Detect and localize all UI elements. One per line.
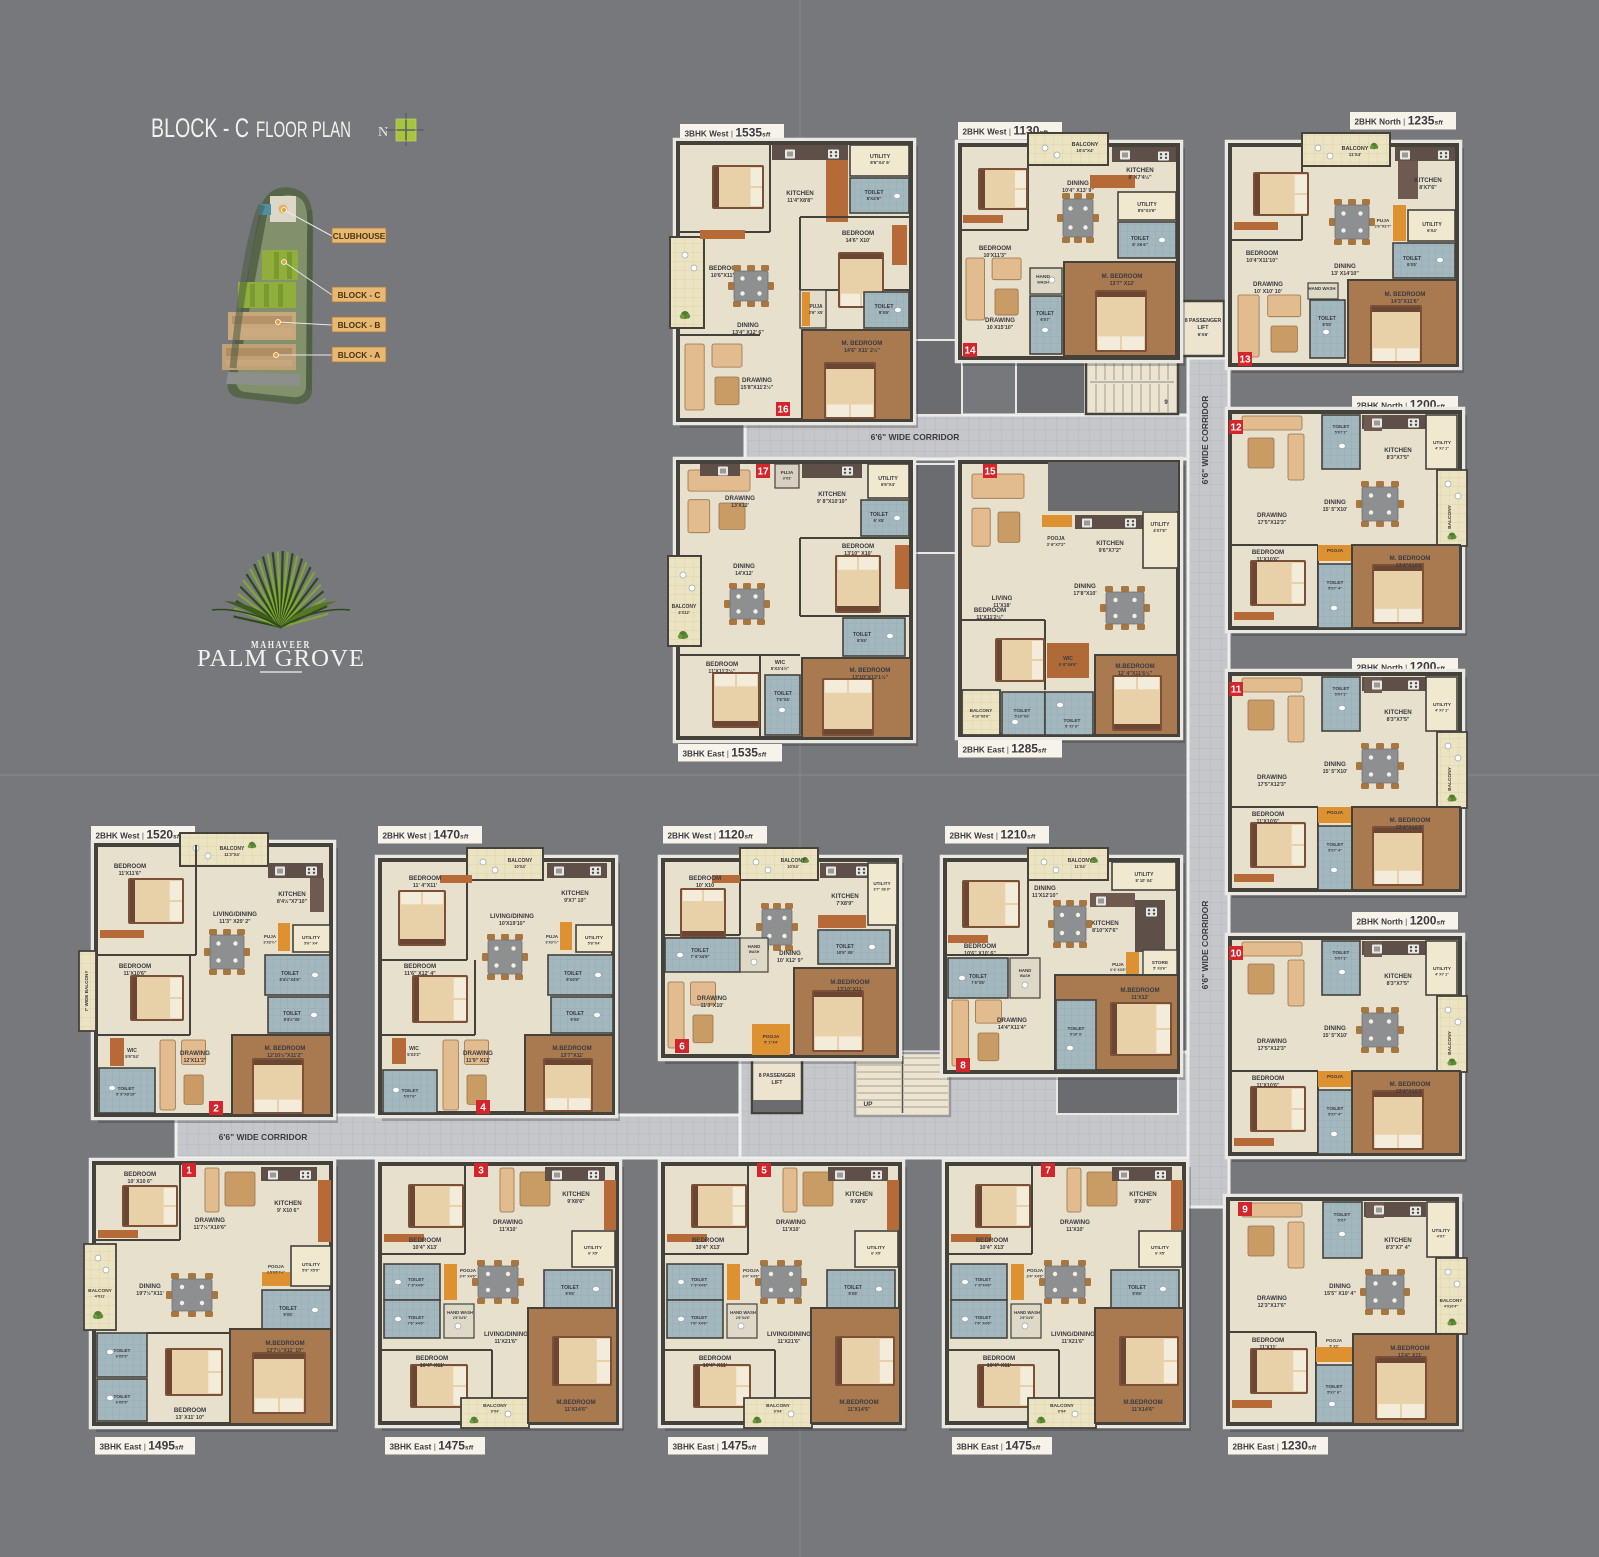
svg-text:DRAWING: DRAWING bbox=[1257, 1038, 1287, 1045]
svg-text:10'5" X5': 10'5" X5' bbox=[837, 950, 854, 955]
svg-text:5' 1"X4': 5' 1"X4' bbox=[764, 1040, 778, 1045]
svg-text:10'X4': 10'X4' bbox=[514, 864, 526, 869]
svg-text:TOILET: TOILET bbox=[691, 1277, 707, 1282]
svg-text:DRAWING: DRAWING bbox=[1060, 1219, 1090, 1226]
svg-text:KITCHEN: KITCHEN bbox=[1126, 167, 1154, 174]
svg-text:13' X11' 10": 13' X11' 10" bbox=[176, 1415, 205, 1421]
svg-text:BEDROOM: BEDROOM bbox=[689, 875, 721, 882]
svg-text:8'4½"X7'10": 8'4½"X7'10" bbox=[277, 898, 308, 905]
svg-text:M.BEDROOM: M.BEDROOM bbox=[1115, 663, 1154, 670]
svg-text:7'6" X4'6": 7'6" X4'6" bbox=[691, 1321, 708, 1325]
svg-text:DRAWING: DRAWING bbox=[1257, 774, 1287, 781]
svg-text:12'X11'2": 12'X11'2" bbox=[183, 1058, 206, 1064]
svg-text:10'4" X11': 10'4" X11' bbox=[987, 1363, 1011, 1369]
svg-text:4' X7 1": 4' X7 1" bbox=[1435, 972, 1449, 977]
svg-text:3' 6"X7'2": 3' 6"X7'2" bbox=[1047, 542, 1066, 547]
svg-text:13'4"X10'6": 13'4"X10'6" bbox=[1396, 1089, 1425, 1095]
svg-text:9'X4': 9'X4' bbox=[1058, 1409, 1067, 1414]
svg-text:6'X5': 6'X5' bbox=[1407, 262, 1417, 267]
svg-text:BALCONY: BALCONY bbox=[1440, 1298, 1463, 1303]
svg-text:M. BEDROOM: M. BEDROOM bbox=[1390, 1081, 1431, 1088]
svg-text:BEDROOM: BEDROOM bbox=[1246, 250, 1278, 257]
svg-text:13'7" X12': 13'7" X12' bbox=[1110, 281, 1135, 287]
svg-text:11'X21'6": 11'X21'6" bbox=[494, 1339, 517, 1345]
svg-text:BLOCK - A: BLOCK - A bbox=[338, 350, 381, 360]
svg-text:M.BEDROOM: M.BEDROOM bbox=[830, 979, 869, 986]
svg-text:7'6"X5': 7'6"X5' bbox=[776, 697, 789, 702]
svg-text:PUJA: PUJA bbox=[1112, 962, 1125, 967]
svg-text:4'X7'6": 4'X7'6" bbox=[1153, 528, 1167, 533]
svg-text:11'X12'10": 11'X12'10" bbox=[1032, 893, 1058, 899]
svg-text:BEDROOM: BEDROOM bbox=[976, 1237, 1008, 1244]
svg-text:5'X3'2": 5'X3'2" bbox=[407, 1052, 421, 1057]
svg-text:KITCHEN: KITCHEN bbox=[818, 491, 846, 498]
svg-text:11'X14'6": 11'X14'6" bbox=[564, 1407, 587, 1413]
svg-text:13'7½"X11' 10": 13'7½"X11' 10" bbox=[266, 1347, 304, 1354]
svg-text:15'8"X11'2½": 15'8"X11'2½" bbox=[741, 384, 774, 391]
svg-text:3' 6' X3'6": 3' 6' X3'6" bbox=[1110, 968, 1127, 972]
svg-text:POOJA: POOJA bbox=[1327, 810, 1344, 815]
svg-text:3'X3'½": 3'X3'½" bbox=[263, 940, 276, 944]
svg-text:LIVING/DINING: LIVING/DINING bbox=[1051, 1331, 1095, 1338]
svg-text:9'X8'6": 9'X8'6" bbox=[850, 1199, 868, 1205]
svg-text:5'9"X4': 5'9"X4' bbox=[125, 1054, 138, 1059]
svg-text:5'X7'6": 5'X7'6" bbox=[404, 1094, 417, 1099]
svg-text:BEDROOM: BEDROOM bbox=[692, 1237, 724, 1244]
svg-text:16: 16 bbox=[777, 405, 789, 416]
svg-text:BLOCK - C: BLOCK - C bbox=[338, 290, 381, 300]
svg-text:8'3"X7'5": 8'3"X7'5" bbox=[1387, 981, 1410, 987]
svg-text:11'X14'6": 11'X14'6" bbox=[847, 1407, 870, 1413]
svg-text:7'6" X4'6": 7'6" X4'6" bbox=[975, 1321, 992, 1325]
svg-text:BALCONY: BALCONY bbox=[1447, 766, 1453, 791]
svg-text:2'6"X4'6": 2'6"X4'6" bbox=[453, 1316, 468, 1320]
svg-text:DRAWING: DRAWING bbox=[180, 1050, 210, 1057]
svg-text:DINING: DINING bbox=[1034, 885, 1056, 892]
svg-text:6' X5': 6' X5' bbox=[874, 518, 885, 523]
svg-text:9'X5': 9'X5' bbox=[565, 1291, 574, 1296]
svg-text:5: 5 bbox=[761, 1166, 767, 1177]
svg-text:2'6"X4'6": 2'6"X4'6" bbox=[1020, 1316, 1035, 1320]
svg-text:10'4" X11': 10'4" X11' bbox=[420, 1363, 444, 1369]
svg-text:LIVING/DINING: LIVING/DINING bbox=[767, 1331, 811, 1338]
svg-text:11'X10'6": 11'X10'6" bbox=[1256, 1083, 1279, 1089]
svg-text:11'4"X8'8": 11'4"X8'8" bbox=[787, 198, 813, 204]
svg-text:11'X21'6": 11'X21'6" bbox=[777, 1339, 800, 1345]
svg-text:11'X10'6": 11'X10'6" bbox=[123, 971, 146, 977]
svg-text:LIVING/DINING: LIVING/DINING bbox=[490, 913, 534, 920]
svg-text:5'9" X5'9": 5'9" X5'9" bbox=[302, 1268, 320, 1273]
svg-text:10' X10' 10': 10' X10' 10' bbox=[1254, 289, 1282, 295]
svg-text:DINING: DINING bbox=[1334, 263, 1356, 270]
svg-text:WASH: WASH bbox=[1020, 974, 1031, 978]
svg-text:DINING: DINING bbox=[1074, 583, 1096, 590]
svg-text:TOILET: TOILET bbox=[691, 1315, 707, 1320]
svg-text:POOJA: POOJA bbox=[1327, 1074, 1344, 1079]
svg-text:KITCHEN: KITCHEN bbox=[1384, 973, 1412, 980]
svg-text:TOILET: TOILET bbox=[975, 1277, 991, 1282]
svg-text:KITCHEN: KITCHEN bbox=[561, 890, 589, 897]
svg-text:9'6"X7'2": 9'6"X7'2" bbox=[1099, 548, 1122, 554]
svg-text:2'6"X3'7": 2'6"X3'7" bbox=[1375, 224, 1392, 229]
svg-text:DRAWING: DRAWING bbox=[493, 1219, 523, 1226]
svg-text:6'6" WIDE CORRIDOR: 6'6" WIDE CORRIDOR bbox=[871, 432, 960, 442]
svg-text:KITCHEN: KITCHEN bbox=[1129, 1191, 1157, 1198]
svg-text:6'X6': 6'X6' bbox=[1198, 332, 1209, 338]
svg-text:5' 9"X8'10": 5' 9"X8'10" bbox=[116, 1092, 136, 1097]
svg-text:KITCHEN: KITCHEN bbox=[1096, 540, 1124, 547]
svg-text:14'X12': 14'X12' bbox=[735, 571, 753, 577]
svg-text:9' X10 6": 9' X10 6" bbox=[277, 1208, 300, 1214]
svg-text:DRAWING: DRAWING bbox=[985, 317, 1015, 324]
svg-text:11'9" X11': 11'9" X11' bbox=[466, 1058, 490, 1064]
svg-text:4'X12': 4'X12' bbox=[678, 610, 690, 615]
svg-text:9'X5': 9'X5' bbox=[848, 1291, 857, 1296]
svg-text:POOJA: POOJA bbox=[268, 1264, 285, 1269]
svg-text:5'X7'1": 5'X7'1" bbox=[1335, 956, 1348, 961]
svg-text:5'10"X6': 5'10"X6' bbox=[1015, 714, 1030, 719]
svg-text:2'6" X5': 2'6" X5' bbox=[809, 310, 824, 315]
svg-text:11'X11'2½": 11'X11'2½" bbox=[708, 668, 736, 675]
svg-text:13'10"X11': 13'10"X11' bbox=[837, 987, 863, 993]
svg-text:6'6"X4': 6'6"X4' bbox=[881, 482, 895, 487]
svg-text:9'X8'6": 9'X8'6" bbox=[567, 1199, 585, 1205]
svg-text:10' X10: 10' X10 bbox=[696, 883, 714, 889]
svg-text:POOJA: POOJA bbox=[1027, 1268, 1044, 1273]
svg-text:HAND WASH: HAND WASH bbox=[730, 1310, 756, 1315]
svg-text:3: 3 bbox=[478, 1166, 484, 1177]
svg-text:BEDROOM: BEDROOM bbox=[964, 943, 996, 950]
svg-text:M.BEDROOM: M.BEDROOM bbox=[1123, 1399, 1162, 1406]
svg-text:DRAWING: DRAWING bbox=[697, 995, 727, 1002]
svg-text:DINING: DINING bbox=[1324, 1025, 1346, 1032]
svg-text:PUJA: PUJA bbox=[546, 934, 559, 939]
svg-text:5' X7 6": 5' X7 6" bbox=[1065, 724, 1079, 729]
svg-text:10'4" X13': 10'4" X13' bbox=[413, 1245, 438, 1251]
svg-text:BALCONY: BALCONY bbox=[970, 708, 993, 713]
svg-text:8'X7'6": 8'X7'6" bbox=[1419, 185, 1437, 191]
svg-text:10' X12' 9": 10' X12' 9" bbox=[777, 958, 804, 964]
svg-text:11'X10'6": 11'X10'6" bbox=[1256, 819, 1279, 825]
svg-text:5'10' 6': 5'10' 6' bbox=[1070, 1032, 1083, 1037]
svg-text:BEDROOM: BEDROOM bbox=[1252, 1337, 1284, 1344]
svg-text:DRAWING: DRAWING bbox=[725, 495, 755, 502]
svg-text:9'X7' 10": 9'X7' 10" bbox=[564, 898, 586, 904]
svg-text:15' 5"X10': 15' 5"X10' bbox=[1323, 769, 1348, 775]
svg-text:BEDROOM: BEDROOM bbox=[1252, 811, 1284, 818]
svg-text:5'X7'1": 5'X7'1" bbox=[1335, 430, 1348, 435]
svg-text:14'4"X11'4": 14'4"X11'4" bbox=[998, 1025, 1027, 1031]
svg-text:BEDROOM: BEDROOM bbox=[119, 963, 151, 970]
svg-text:6'X5'9": 6'X5'9" bbox=[116, 1354, 129, 1359]
svg-text:BEDROOM: BEDROOM bbox=[416, 1355, 448, 1362]
svg-text:BLOCK - C: BLOCK - C bbox=[151, 113, 249, 143]
svg-text:10: 10 bbox=[1230, 949, 1242, 960]
svg-text:POOJA: POOJA bbox=[1327, 548, 1344, 553]
svg-text:14'6" X10': 14'6" X10' bbox=[846, 238, 871, 244]
svg-text:DINING: DINING bbox=[779, 950, 801, 957]
svg-text:5' X3'6": 5' X3'6" bbox=[1153, 966, 1167, 971]
svg-text:13'10"X12'1½": 13'10"X12'1½" bbox=[852, 674, 889, 681]
svg-text:17'5"X12'3": 17'5"X12'3" bbox=[1258, 520, 1287, 526]
svg-text:KITCHEN: KITCHEN bbox=[845, 1191, 873, 1198]
svg-text:UTILITY: UTILITY bbox=[873, 881, 890, 886]
svg-text:BALCONY: BALCONY bbox=[1447, 504, 1453, 529]
svg-text:7' 6"X4'6": 7' 6"X4'6" bbox=[691, 1283, 708, 1287]
svg-text:8'4½"X4'6": 8'4½"X4'6" bbox=[279, 977, 300, 982]
svg-text:DINING: DINING bbox=[737, 322, 759, 329]
svg-text:PALM GROVE: PALM GROVE bbox=[197, 646, 365, 672]
svg-text:11'7½"X10'6": 11'7½"X10'6" bbox=[194, 1224, 227, 1231]
svg-text:DRAWING: DRAWING bbox=[463, 1050, 493, 1057]
svg-text:5'X3'4½": 5'X3'4½" bbox=[771, 665, 790, 671]
svg-text:6: 6 bbox=[679, 1042, 685, 1053]
svg-text:7' 6"X4'9": 7' 6"X4'9" bbox=[691, 954, 710, 959]
svg-text:8'6"X3'6": 8'6"X3'6" bbox=[1138, 208, 1157, 213]
svg-text:M.BEDROOM: M.BEDROOM bbox=[552, 1045, 591, 1052]
svg-text:9'X4'9": 9'X4'9" bbox=[566, 977, 580, 982]
svg-text:6'X7': 6'X7' bbox=[1040, 317, 1049, 322]
svg-text:9: 9 bbox=[1242, 1205, 1248, 1216]
svg-text:TOILET: TOILET bbox=[975, 1315, 991, 1320]
svg-text:11'X10': 11'X10' bbox=[499, 1227, 517, 1233]
svg-text:13: 13 bbox=[1239, 355, 1251, 366]
svg-text:BEDROOM: BEDROOM bbox=[842, 543, 874, 550]
svg-text:PUJA: PUJA bbox=[264, 934, 277, 939]
svg-text:2'6"X4'6": 2'6"X4'6" bbox=[736, 1316, 751, 1320]
svg-text:5' X2': 5' X2' bbox=[1329, 1344, 1338, 1348]
svg-text:11'6" X12' 4": 11'6" X12' 4" bbox=[404, 971, 436, 977]
svg-text:6' X6 6": 6' X6 6" bbox=[1132, 242, 1147, 247]
svg-text:KITCHEN: KITCHEN bbox=[1384, 447, 1412, 454]
svg-text:M. BEDROOM: M. BEDROOM bbox=[1102, 273, 1143, 280]
svg-text:HAND: HAND bbox=[1019, 968, 1032, 973]
svg-text:11'X4': 11'X4' bbox=[1349, 152, 1361, 157]
svg-text:11'X11'6": 11'X11'6" bbox=[119, 871, 142, 877]
svg-text:BEDROOM: BEDROOM bbox=[409, 1237, 441, 1244]
svg-text:8'3"X7'5": 8'3"X7'5" bbox=[1387, 455, 1410, 461]
svg-text:10'4" X11': 10'4" X11' bbox=[703, 1363, 727, 1369]
svg-text:TOILET: TOILET bbox=[408, 1277, 424, 1282]
svg-text:BEDROOM: BEDROOM bbox=[842, 230, 874, 237]
svg-text:5'8"X4': 5'8"X4' bbox=[588, 941, 601, 946]
svg-text:9' 8"X10'10": 9' 8"X10'10" bbox=[817, 499, 848, 505]
svg-text:TOILET: TOILET bbox=[864, 190, 884, 196]
svg-text:9'X4': 9'X4' bbox=[774, 1409, 783, 1414]
svg-text:BEDROOM: BEDROOM bbox=[706, 661, 738, 668]
svg-text:7'X8'9": 7'X8'9" bbox=[836, 901, 854, 907]
svg-text:BALCONY: BALCONY bbox=[1447, 1030, 1453, 1055]
svg-text:DRAWING: DRAWING bbox=[776, 1219, 806, 1226]
svg-text:POOJA: POOJA bbox=[460, 1268, 477, 1273]
svg-text:M. BEDROOM: M. BEDROOM bbox=[842, 340, 883, 347]
svg-text:14: 14 bbox=[964, 346, 976, 357]
svg-text:11'3"X10': 11'3"X10' bbox=[700, 1003, 723, 1009]
svg-text:BEDROOM: BEDROOM bbox=[974, 607, 1006, 614]
svg-text:POOJA: POOJA bbox=[1326, 1338, 1343, 1343]
svg-text:4' X7 1": 4' X7 1" bbox=[1435, 446, 1449, 451]
svg-text:8'4½"X5': 8'4½"X5' bbox=[284, 1017, 301, 1022]
svg-text:DINING: DINING bbox=[1067, 180, 1089, 187]
svg-text:11'X12': 11'X12' bbox=[1131, 995, 1149, 1001]
svg-text:11'3"X4': 11'3"X4' bbox=[224, 852, 240, 857]
svg-text:13'7"X11': 13'7"X11' bbox=[560, 1053, 583, 1059]
svg-text:DRAWING: DRAWING bbox=[997, 1017, 1027, 1024]
svg-text:11: 11 bbox=[1231, 685, 1242, 696]
svg-text:9'X8'6": 9'X8'6" bbox=[1134, 1199, 1152, 1205]
svg-text:6'6" WIDE CORRIDOR: 6'6" WIDE CORRIDOR bbox=[1200, 901, 1210, 990]
svg-text:15'5" X10' 4": 15'5" X10' 4" bbox=[1324, 1291, 1356, 1297]
svg-text:KITCHEN: KITCHEN bbox=[274, 1200, 302, 1207]
svg-text:5'X7': 5'X7' bbox=[1338, 1218, 1347, 1223]
svg-text:UTILITY: UTILITY bbox=[870, 154, 891, 160]
svg-text:M. BEDROOM: M. BEDROOM bbox=[850, 667, 891, 674]
svg-text:17'5"X12'3": 17'5"X12'3" bbox=[1258, 782, 1287, 788]
svg-text:12: 12 bbox=[1230, 423, 1242, 434]
svg-text:10'4" X13': 10'4" X13' bbox=[980, 1245, 1005, 1251]
svg-text:11'X4': 11'X4' bbox=[1074, 864, 1085, 869]
svg-text:3'4" X4'6": 3'4" X4'6" bbox=[1027, 1274, 1044, 1278]
svg-text:9'X4': 9'X4' bbox=[491, 1409, 500, 1414]
svg-text:M. BEDROOM: M. BEDROOM bbox=[1385, 291, 1426, 298]
svg-text:7' 6"X4'6": 7' 6"X4'6" bbox=[408, 1283, 425, 1287]
svg-text:WASH: WASH bbox=[749, 950, 760, 954]
svg-text:M. BEDROOM: M. BEDROOM bbox=[1390, 555, 1431, 562]
svg-text:10'6" X10' 6": 10'6" X10' 6" bbox=[964, 951, 996, 957]
svg-text:M.BEDROOM: M.BEDROOM bbox=[1390, 1345, 1429, 1352]
svg-text:BALCONY: BALCONY bbox=[1342, 146, 1369, 152]
svg-text:4'10"X6'6": 4'10"X6'6" bbox=[972, 714, 990, 718]
svg-text:M. BEDROOM: M. BEDROOM bbox=[265, 1045, 306, 1052]
svg-text:8' 10' X4': 8' 10' X4' bbox=[1135, 878, 1152, 883]
svg-text:15' 5"X10': 15' 5"X10' bbox=[1323, 1033, 1348, 1039]
svg-text:DRAWING: DRAWING bbox=[195, 1217, 225, 1224]
svg-text:POOJA: POOJA bbox=[743, 1268, 760, 1273]
svg-text:LIFT: LIFT bbox=[772, 1080, 784, 1086]
svg-text:10 X15'10": 10 X15'10" bbox=[987, 325, 1014, 331]
svg-text:HAND: HAND bbox=[748, 944, 761, 949]
svg-text:DINING: DINING bbox=[1324, 761, 1346, 768]
svg-text:M.BEDROOM: M.BEDROOM bbox=[1120, 987, 1159, 994]
svg-text:12'3"X17'6": 12'3"X17'6" bbox=[1258, 1303, 1287, 1309]
svg-text:14'6" X11' 2½": 14'6" X11' 2½" bbox=[844, 347, 880, 354]
svg-text:DINING: DINING bbox=[733, 563, 755, 570]
svg-text:11'X10': 11'X10' bbox=[1066, 1227, 1084, 1233]
svg-text:8'10"X7'6": 8'10"X7'6" bbox=[1092, 928, 1118, 934]
svg-text:11'X10': 11'X10' bbox=[782, 1227, 800, 1233]
svg-text:4'X11': 4'X11' bbox=[95, 1294, 106, 1299]
svg-text:10'4"X11'10": 10'4"X11'10" bbox=[1246, 258, 1278, 264]
svg-text:BEDROOM: BEDROOM bbox=[1252, 549, 1284, 556]
svg-text:BEDROOM: BEDROOM bbox=[174, 1407, 206, 1414]
svg-text:13'4"X10'6": 13'4"X10'6" bbox=[1396, 825, 1425, 831]
svg-text:11'X21'6": 11'X21'6" bbox=[1061, 1339, 1084, 1345]
svg-text:12'10½"X11'2": 12'10½"X11'2" bbox=[267, 1052, 303, 1059]
svg-text:3'4" X4'6": 3'4" X4'6" bbox=[743, 1274, 760, 1278]
svg-text:10'4" X13' 9": 10'4" X13' 9" bbox=[1062, 188, 1094, 194]
svg-text:DRAWING: DRAWING bbox=[1253, 281, 1283, 288]
svg-text:KITCHEN: KITCHEN bbox=[1414, 177, 1442, 184]
svg-text:5' 6"X6'6": 5' 6"X6'6" bbox=[1059, 662, 1078, 667]
svg-text:6'X4': 6'X4' bbox=[1427, 228, 1437, 233]
svg-text:10'4"X4': 10'4"X4' bbox=[1076, 148, 1093, 153]
svg-text:4'X7': 4'X7' bbox=[1437, 1234, 1446, 1239]
svg-text:10'X19'10": 10'X19'10" bbox=[499, 921, 526, 927]
svg-text:LIFT: LIFT bbox=[1198, 325, 1210, 331]
svg-text:M.BEDROOM: M.BEDROOM bbox=[839, 1399, 878, 1406]
svg-text:CLUBHOUSE: CLUBHOUSE bbox=[333, 231, 386, 241]
svg-text:4'X10'4": 4'X10'4" bbox=[1444, 1304, 1458, 1308]
svg-text:LIVING/DINING: LIVING/DINING bbox=[213, 911, 257, 918]
svg-text:3'7" X8 9": 3'7" X8 9" bbox=[873, 887, 890, 891]
svg-text:3'X3'½": 3'X3'½" bbox=[545, 940, 558, 944]
svg-text:DINING: DINING bbox=[1329, 1283, 1351, 1290]
svg-text:3'X3': 3'X3' bbox=[783, 476, 792, 481]
svg-text:8' X7'4½": 8' X7'4½" bbox=[1128, 174, 1152, 181]
svg-text:BLOCK - B: BLOCK - B bbox=[338, 320, 381, 330]
svg-text:HAND WASH: HAND WASH bbox=[1308, 286, 1335, 291]
svg-text:BEDROOM: BEDROOM bbox=[983, 1355, 1015, 1362]
svg-text:HAND WASH: HAND WASH bbox=[447, 1310, 473, 1315]
svg-text:11'3" X20' 2": 11'3" X20' 2" bbox=[219, 919, 251, 925]
svg-text:8: 8 bbox=[960, 1061, 966, 1072]
svg-text:M.BEDROOM: M.BEDROOM bbox=[556, 1399, 595, 1406]
svg-text:10'X4': 10'X4' bbox=[787, 864, 799, 869]
svg-text:8'X5': 8'X5' bbox=[1322, 322, 1331, 327]
svg-text:KITCHEN: KITCHEN bbox=[1091, 920, 1119, 927]
svg-text:8'3"X7'5": 8'3"X7'5" bbox=[1387, 717, 1410, 723]
svg-text:DRAWING: DRAWING bbox=[742, 377, 772, 384]
svg-text:5'X7' 4": 5'X7' 4" bbox=[1328, 586, 1342, 591]
svg-text:7' 6"X4'6": 7' 6"X4'6" bbox=[975, 1283, 992, 1287]
svg-text:17'8"X10': 17'8"X10' bbox=[1073, 591, 1096, 597]
svg-text:5'X7'1": 5'X7'1" bbox=[1335, 692, 1348, 697]
svg-text:8'6"X4' 6': 8'6"X4' 6' bbox=[870, 160, 890, 165]
svg-text:10' X10 6": 10' X10 6" bbox=[128, 1179, 153, 1185]
svg-text:8'X5': 8'X5' bbox=[857, 638, 867, 643]
svg-text:BEDROOM: BEDROOM bbox=[699, 1355, 731, 1362]
svg-text:8'X5': 8'X5' bbox=[879, 310, 889, 315]
svg-text:9'X5': 9'X5' bbox=[570, 1017, 579, 1022]
svg-text:6' X5': 6' X5' bbox=[871, 1251, 881, 1256]
svg-text:10'4" X13': 10'4" X13' bbox=[696, 1245, 721, 1251]
svg-text:14'3"X11'6": 14'3"X11'6" bbox=[1391, 299, 1420, 305]
svg-text:BEDROOM: BEDROOM bbox=[114, 863, 146, 870]
svg-text:6' X5': 6' X5' bbox=[588, 1251, 598, 1256]
svg-text:LIVING/DINING: LIVING/DINING bbox=[484, 1331, 528, 1338]
svg-text:9'X5': 9'X5' bbox=[283, 1312, 292, 1317]
svg-text:13'10" X10': 13'10" X10' bbox=[844, 551, 872, 557]
svg-text:UP: UP bbox=[863, 1101, 873, 1108]
svg-text:6' X5': 6' X5' bbox=[1155, 1251, 1165, 1256]
svg-text:TOILET: TOILET bbox=[874, 304, 894, 310]
svg-text:KITCHEN: KITCHEN bbox=[1384, 1237, 1412, 1244]
svg-text:HAND WASH: HAND WASH bbox=[1014, 1310, 1040, 1315]
svg-text:KITCHEN: KITCHEN bbox=[1384, 709, 1412, 716]
svg-text:4' X7 1": 4' X7 1" bbox=[1435, 708, 1449, 713]
svg-text:BEDROOM: BEDROOM bbox=[404, 963, 436, 970]
svg-text:11'X11'2½": 11'X11'2½" bbox=[976, 614, 1004, 621]
svg-text:3'4" X4'6": 3'4" X4'6" bbox=[460, 1274, 477, 1278]
svg-text:5'X7' 6": 5'X7' 6" bbox=[1327, 1390, 1341, 1395]
svg-text:BEDROOM: BEDROOM bbox=[979, 245, 1011, 252]
svg-text:BALCONY: BALCONY bbox=[1072, 142, 1099, 148]
svg-text:DRAWING: DRAWING bbox=[1257, 1295, 1287, 1302]
svg-text:13'4" X11': 13'4" X11' bbox=[1398, 1353, 1422, 1359]
svg-text:M.BEDROOM: M.BEDROOM bbox=[265, 1340, 304, 1347]
svg-text:5'X7' 4": 5'X7' 4" bbox=[1328, 1112, 1342, 1117]
svg-text:17'5"X12'3": 17'5"X12'3" bbox=[1258, 1046, 1287, 1052]
